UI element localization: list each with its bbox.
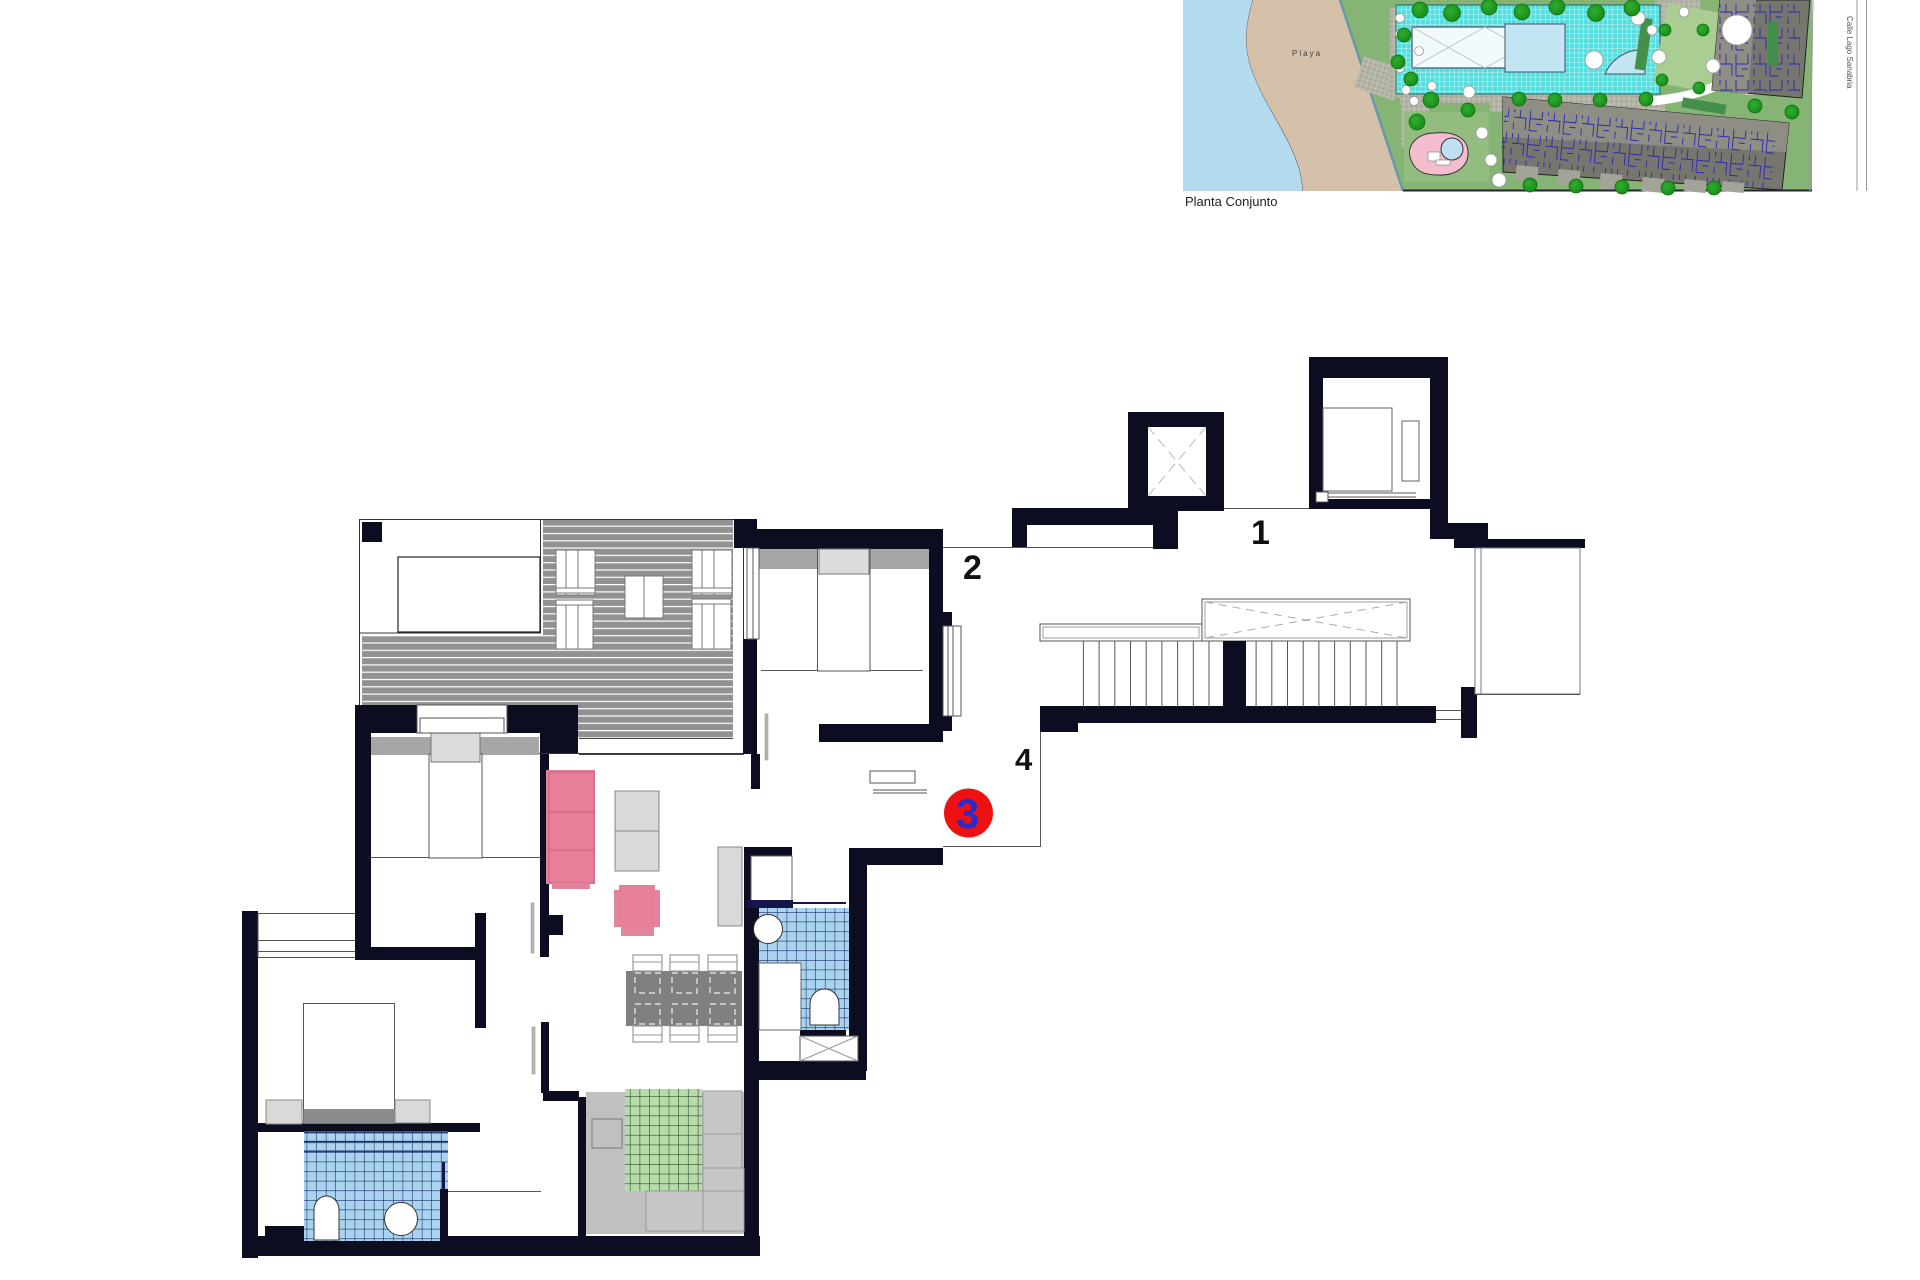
svg-text:4: 4 xyxy=(1015,742,1033,777)
svg-text:2: 2 xyxy=(963,549,982,587)
svg-text:Planta Conjunto: Planta Conjunto xyxy=(1185,194,1278,209)
svg-text:Calle Lago Sanabria: Calle Lago Sanabria xyxy=(1845,16,1854,89)
svg-text:Playa: Playa xyxy=(1292,49,1322,58)
svg-text:1: 1 xyxy=(1251,514,1270,552)
svg-text:3: 3 xyxy=(956,790,979,837)
